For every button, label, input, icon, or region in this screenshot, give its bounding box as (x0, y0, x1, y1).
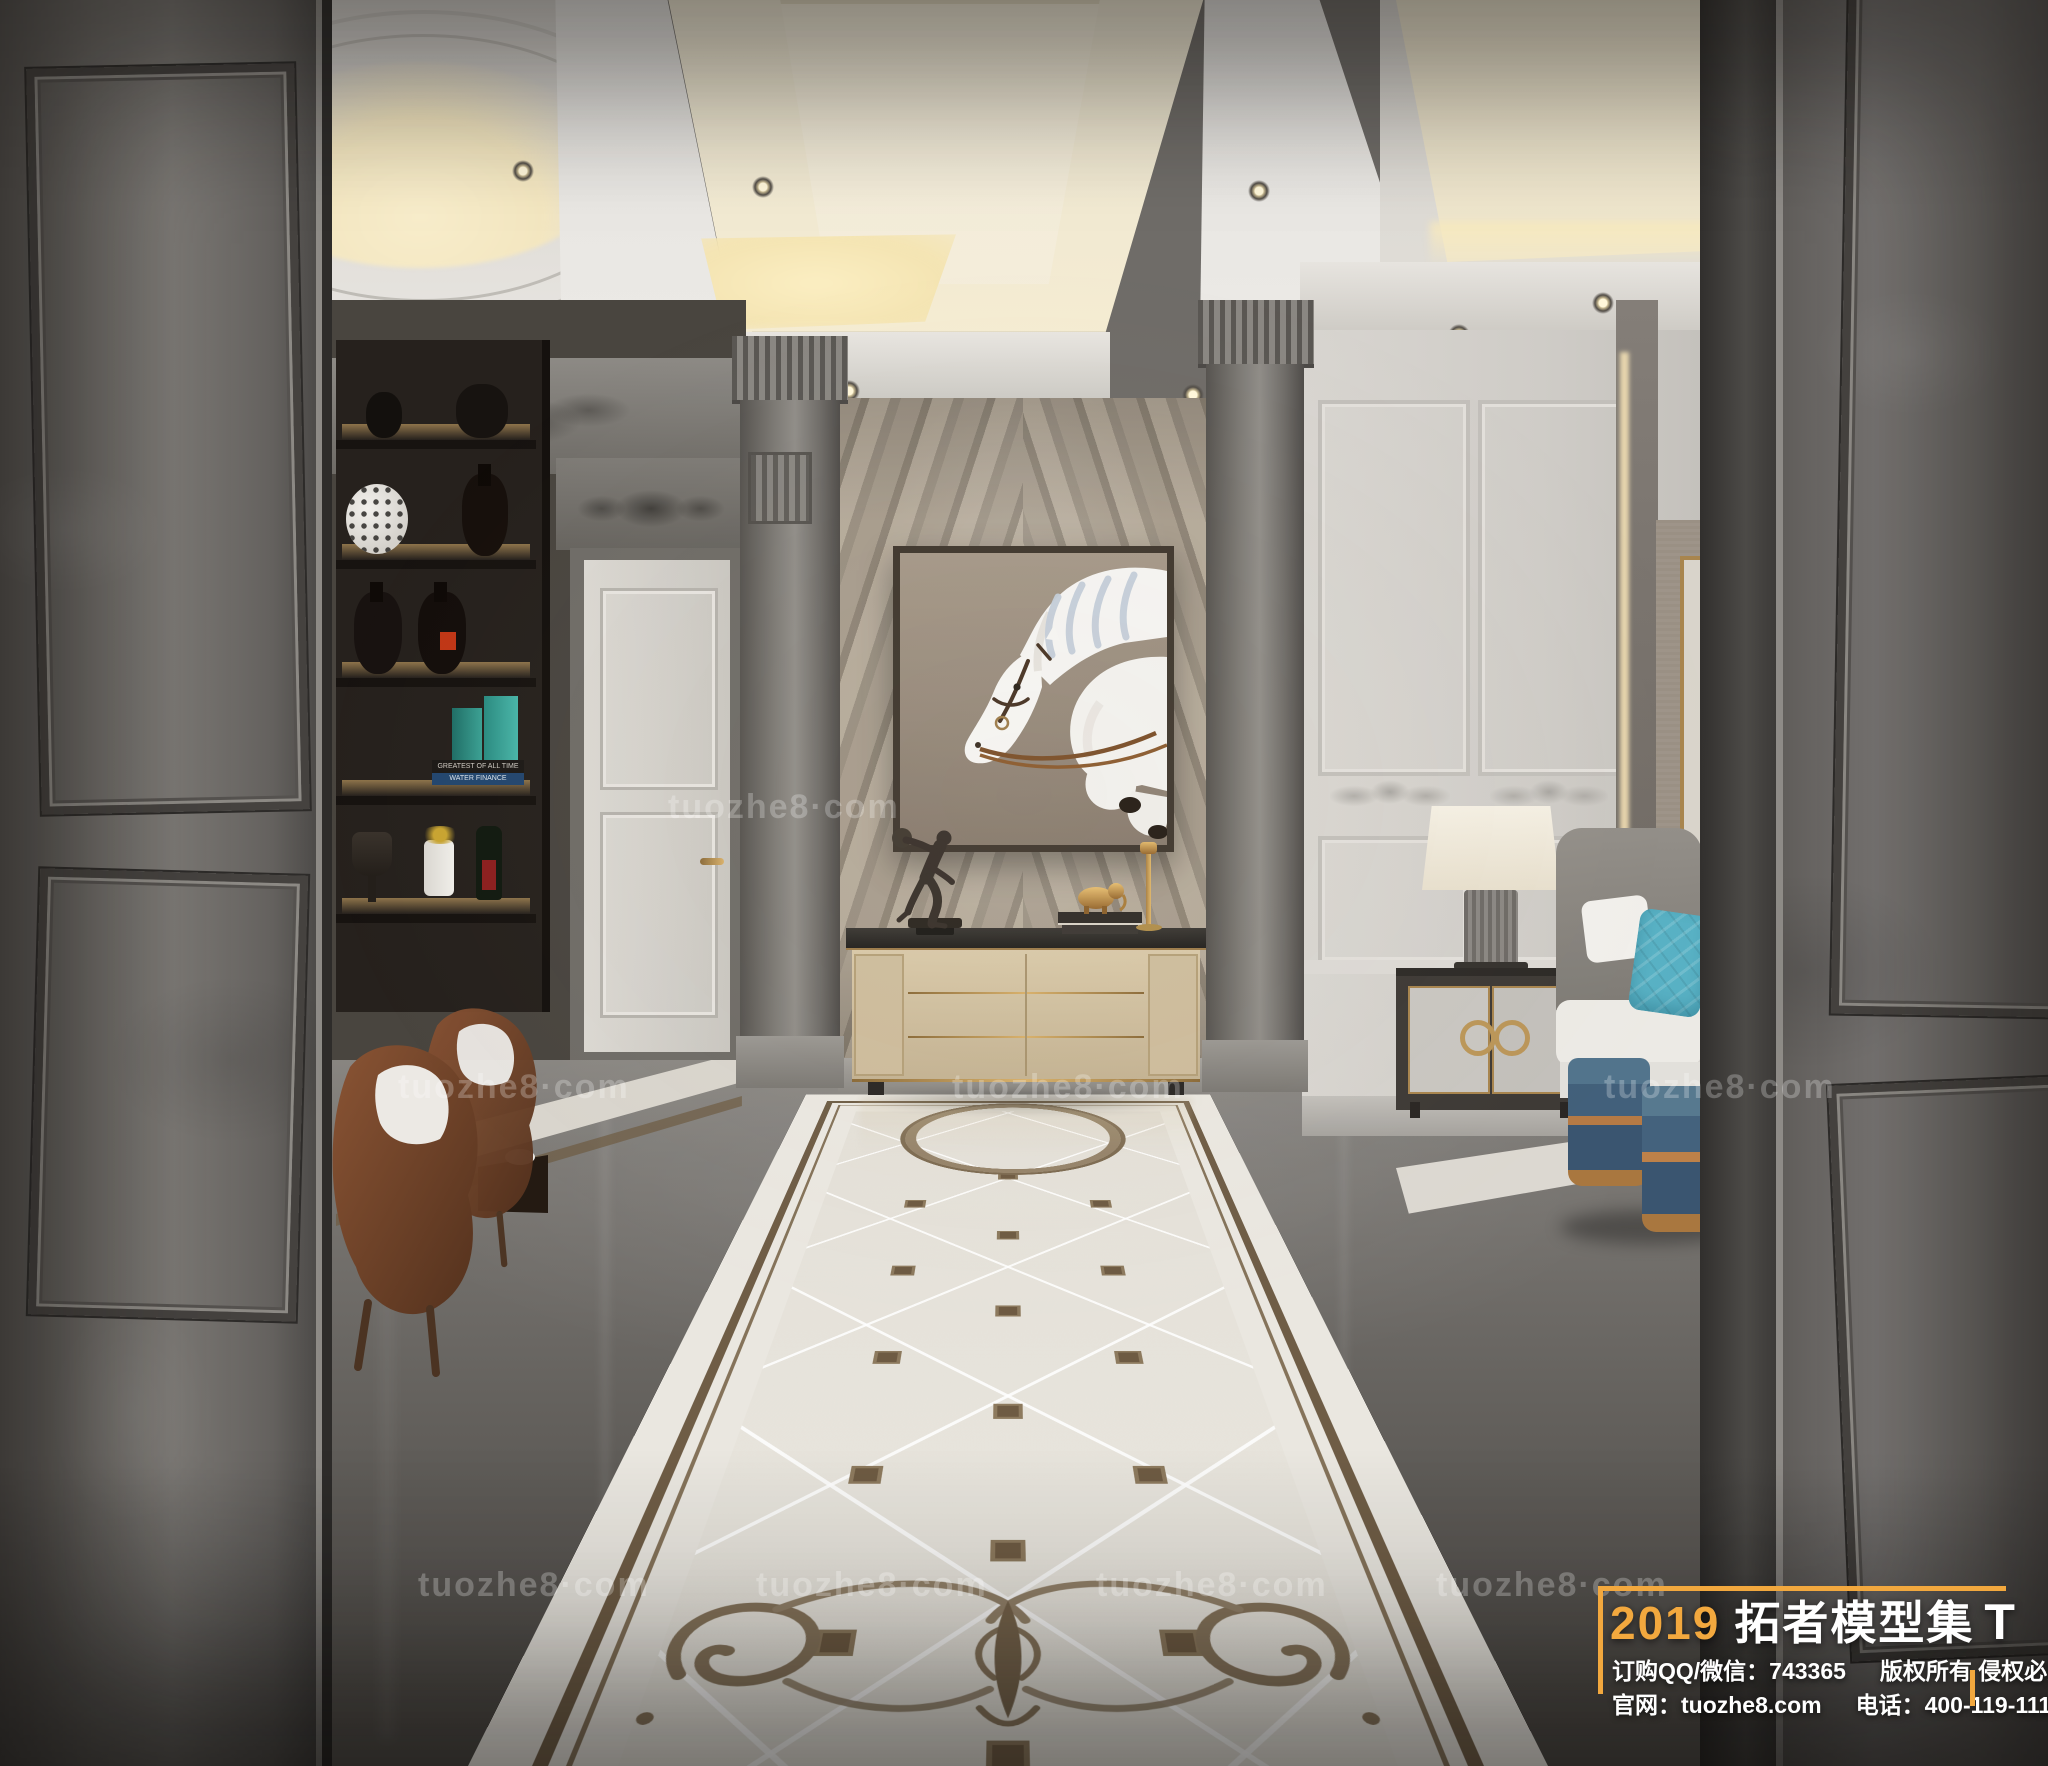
brandy-bottle (354, 592, 402, 674)
console-cabinet (852, 950, 1200, 1082)
foreground-pilaster-left (0, 0, 332, 1766)
cornice-right-band (1300, 262, 1760, 335)
watermark-tile: tuozhe8·com (952, 1068, 1184, 1107)
column-corbel-left (748, 452, 812, 524)
watermark-tile: tuozhe8·com (1096, 1566, 1328, 1605)
logo-frame-top (1598, 1586, 2006, 1591)
horse-painting (893, 546, 1174, 852)
ring-handle-icon (1460, 1020, 1496, 1056)
watermark-tile: tuozhe8·com (756, 1566, 988, 1605)
logo-phone: 电话：400-119-1118 (1856, 1692, 2048, 1718)
dark-vase (366, 392, 402, 438)
watermark-tile: tuozhe8·com (418, 1566, 650, 1605)
console-feet (868, 1082, 884, 1095)
downlight-icon (512, 160, 534, 182)
book-stack: GREATEST OF ALL TIME (432, 760, 524, 773)
tuozhe-watermark-logo: 2019拓者模型集T 订购QQ/微信：743365版权所有 侵权必究 官网：tu… (1596, 1582, 2016, 1722)
gold-candlestick-base (1136, 924, 1162, 931)
column-base-right (1202, 1040, 1308, 1092)
carpet-scroll-ornament (548, 1542, 1467, 1766)
ring-handle-icon (1494, 1020, 1530, 1056)
foreground-pilaster-right (1700, 0, 2048, 1766)
logo-frame-left (1598, 1586, 1603, 1694)
goblet (352, 832, 392, 876)
wall-panel (1478, 400, 1628, 776)
downlight-icon (1592, 292, 1614, 314)
gold-candlestick-top (1140, 842, 1157, 854)
pilaster-panel (26, 63, 310, 814)
book-stack: WATER FINANCE (432, 773, 524, 785)
logo-brand: 拓者模型集 (1734, 1597, 1974, 1649)
foyer-3d-render: GREATEST OF ALL TIME WATER FINANCE (0, 0, 2048, 1766)
downlight-icon (752, 176, 774, 198)
wine-cabinet: GREATEST OF ALL TIME WATER FINANCE (336, 340, 550, 1012)
watermark-tile: tuozhe8·com (668, 788, 900, 827)
logo-frame-tick (1970, 1670, 1975, 1706)
door-pediment-crest (556, 458, 746, 550)
floor-reflection-streak (600, 1100, 610, 1520)
downlight-icon (1248, 180, 1270, 202)
gold-candlestick (1146, 852, 1151, 928)
teal-canister (484, 696, 518, 760)
column-base-left (736, 1036, 844, 1088)
wall-panel (1318, 400, 1470, 776)
discus-thrower-statue (888, 820, 980, 938)
horse-painting-canvas (900, 553, 1167, 845)
table-lamp-base (1464, 890, 1518, 968)
teal-canister (452, 708, 482, 760)
logo-website: 官网：tuozhe8.com (1612, 1692, 1822, 1718)
door-handle (700, 858, 724, 865)
column-capital-right (1198, 300, 1314, 368)
logo-year: 2019 (1610, 1597, 1720, 1649)
logo-mark: T (1984, 1594, 2017, 1650)
logo-title: 2019拓者模型集T (1610, 1594, 2016, 1652)
logo-contact-qq: 订购QQ/微信：743365 (1612, 1658, 1846, 1684)
dining-chairs (328, 1005, 548, 1405)
side-cabinet-legs (1410, 1102, 1420, 1118)
gold-animal-figurine (1068, 876, 1132, 916)
watermark-tile: tuozhe8·com (398, 1068, 630, 1107)
watermark-tile: tuozhe8·com (1604, 1068, 1836, 1107)
flower-vase (424, 840, 454, 896)
table-lamp-shade (1422, 806, 1560, 890)
column-capital-left (732, 336, 848, 404)
pilaster-panel (28, 868, 308, 1321)
brandy-bottle (462, 474, 508, 556)
logo-copyright: 版权所有 侵权必究 (1880, 1658, 2048, 1684)
marble-column-right (1206, 364, 1304, 1090)
pilaster-panel (1831, 0, 2048, 1018)
dark-vase (456, 384, 508, 438)
stacked-books (1062, 925, 1138, 934)
